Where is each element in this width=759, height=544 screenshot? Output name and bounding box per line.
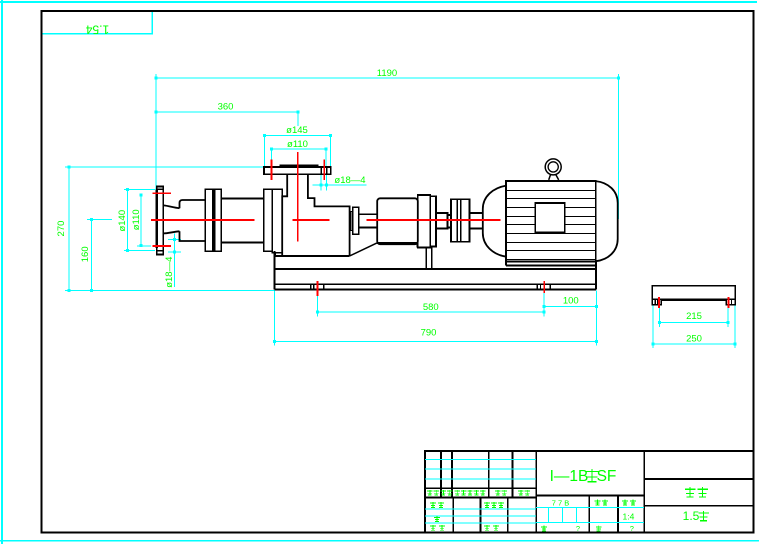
svg-text:1:4: 1:4 [622,512,634,522]
svg-text:?: ? [630,524,634,533]
svg-text:SF: SF [597,468,617,485]
svg-text:790: 790 [421,328,437,339]
svg-text:250: 250 [686,333,702,344]
svg-text:580: 580 [423,302,439,313]
svg-text:ø140: ø140 [117,210,128,232]
svg-text:160: 160 [80,246,91,262]
svg-text:ø18—4: ø18—4 [164,257,175,288]
svg-text:7 7 B: 7 7 B [552,499,570,508]
svg-text:ø18—4: ø18—4 [334,175,365,186]
svg-text:I—1B: I—1B [550,468,589,485]
svg-text:1190: 1190 [377,68,397,79]
svg-text:1.54: 1.54 [85,23,109,37]
svg-text:ø145: ø145 [286,125,308,136]
svg-text:100: 100 [563,296,579,307]
svg-text:215: 215 [686,311,702,322]
svg-text:?: ? [576,524,580,533]
svg-text:ø110: ø110 [287,139,308,150]
svg-text:ø110: ø110 [131,209,142,230]
svg-text:1.5: 1.5 [683,509,700,523]
svg-text:360: 360 [218,101,234,112]
svg-text:270: 270 [56,221,67,237]
